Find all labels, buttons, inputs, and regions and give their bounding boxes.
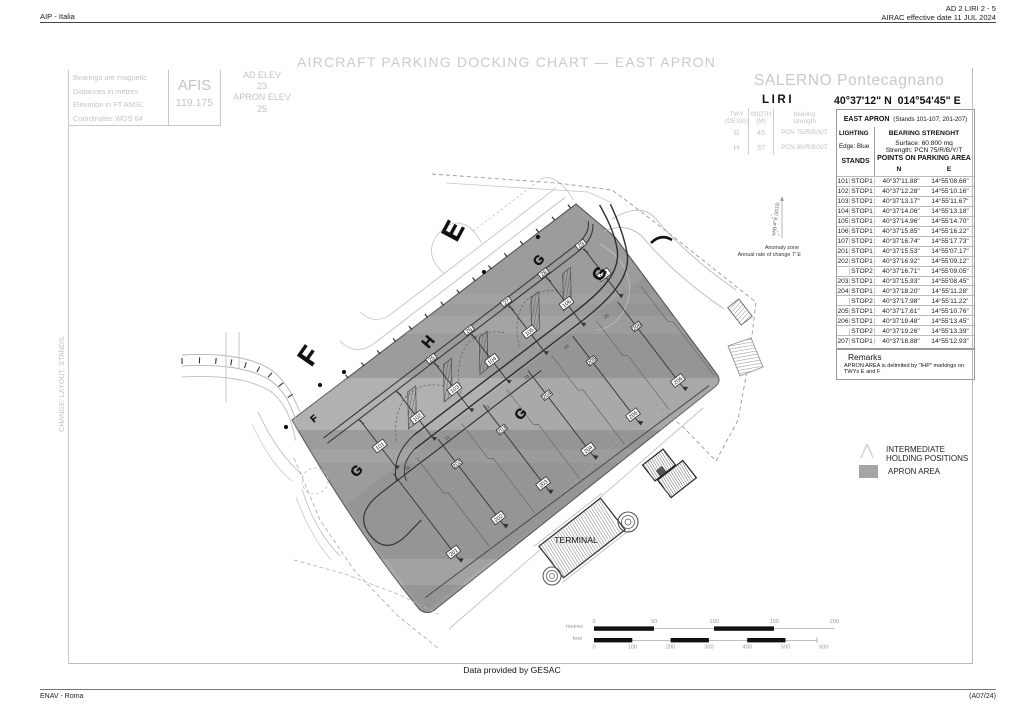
svg-text:Annual rate of change 7' E: Annual rate of change 7' E — [738, 252, 802, 258]
svg-text:E: E — [436, 216, 471, 246]
svg-text:500: 500 — [781, 645, 790, 651]
svg-text:300: 300 — [704, 645, 713, 651]
svg-text:F: F — [292, 340, 326, 371]
svg-text:150: 150 — [770, 619, 779, 625]
svg-text:metres: metres — [566, 624, 583, 630]
svg-text:feet: feet — [573, 636, 583, 642]
svg-text:TERMINAL: TERMINAL — [554, 535, 598, 545]
svg-text:400: 400 — [743, 645, 752, 651]
svg-text:200: 200 — [830, 619, 839, 625]
svg-text:VAR 4° E (2015): VAR 4° E (2015) — [771, 202, 780, 236]
svg-text:0: 0 — [592, 619, 595, 625]
svg-text:100: 100 — [628, 645, 637, 651]
svg-text:100: 100 — [710, 619, 719, 625]
svg-text:600: 600 — [819, 645, 828, 651]
svg-text:50: 50 — [651, 619, 657, 625]
svg-text:Anomaly zone: Anomaly zone — [765, 245, 799, 251]
svg-text:200: 200 — [666, 645, 675, 651]
svg-text:0: 0 — [592, 645, 595, 651]
